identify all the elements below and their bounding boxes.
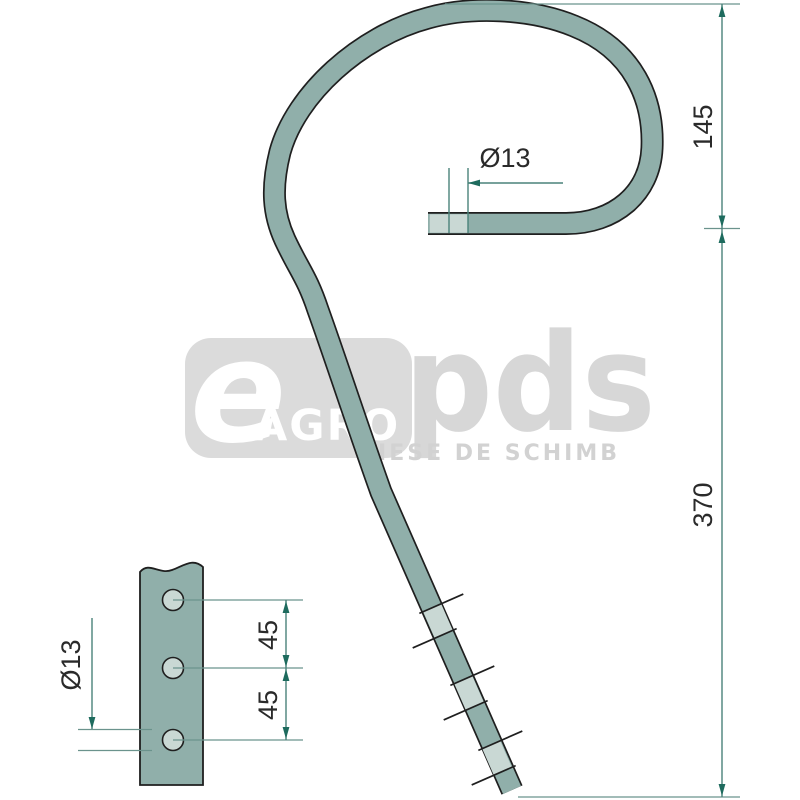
dim-label-hole-diameter: Ø13 [56, 639, 86, 690]
dimension-hole-spacing: 45 45 [253, 600, 289, 740]
tine-drawing-svg: e AGRO pds PIESE DE SCHIMB [0, 0, 800, 800]
arrow-up-icon [283, 669, 290, 681]
watermark-logo: e AGRO pds PIESE DE SCHIMB [185, 305, 656, 475]
technical-drawing-page: e AGRO pds PIESE DE SCHIMB [0, 0, 800, 800]
arrow-down-icon [283, 727, 290, 739]
detail-view-mounting-bar: 45 45 Ø13 [56, 563, 303, 785]
arrow-down-icon [283, 655, 290, 667]
dimension-hole-diameter: Ø13 [56, 618, 152, 751]
arrow-up-icon [719, 5, 726, 17]
arrow-down-icon [89, 717, 96, 729]
watermark-brand-pds: pds [404, 305, 656, 462]
arrow-up-icon [719, 231, 726, 243]
dim-label-45-bottom: 45 [253, 690, 283, 720]
dim-label-370: 370 [688, 482, 718, 527]
watermark-tagline: PIESE DE SCHIMB [359, 441, 620, 466]
arrow-down-icon [719, 784, 726, 796]
arrow-down-icon [719, 216, 726, 228]
dim-label-145: 145 [688, 104, 718, 149]
dim-label-45-top: 45 [253, 620, 283, 650]
arrow-up-icon [283, 601, 290, 613]
arrow-left-icon [468, 180, 480, 187]
dim-label-tip-diameter: Ø13 [479, 143, 530, 173]
